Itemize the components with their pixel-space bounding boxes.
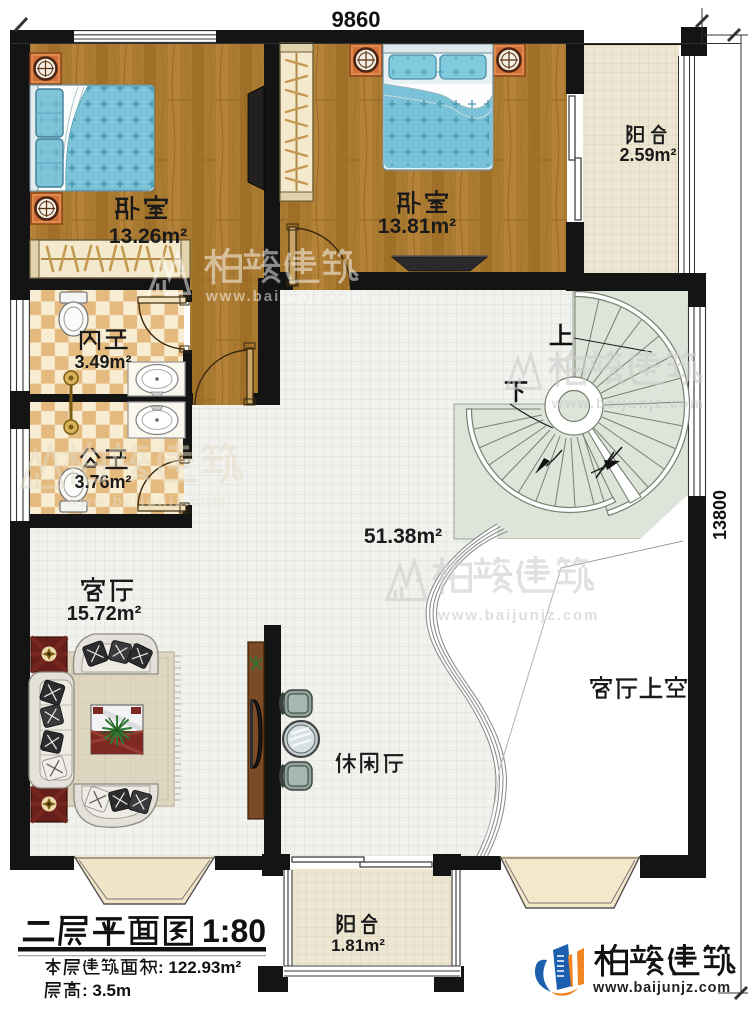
svg-text:www.baijunjz.com: www.baijunjz.com [437,607,599,624]
svg-text:: 3.5m: : 3.5m [82,981,131,1000]
svg-text:3.49m²: 3.49m² [74,352,131,372]
svg-text:15.72m²: 15.72m² [67,603,142,625]
svg-text:www.baijunjz.com: www.baijunjz.com [592,980,731,996]
svg-text:13800: 13800 [710,490,730,540]
svg-text:2.59m²: 2.59m² [619,145,676,165]
svg-text:13.81m²: 13.81m² [378,215,456,238]
svg-text:: 122.93m²: : 122.93m² [158,958,241,977]
svg-text:www.baijunjz.com: www.baijunjz.com [551,395,705,411]
svg-text:1:80: 1:80 [202,913,266,949]
svg-text:1.81m²: 1.81m² [331,936,385,955]
svg-text:13.26m²: 13.26m² [109,225,187,248]
svg-text:9860: 9860 [332,7,381,32]
svg-text:51.38m²: 51.38m² [364,525,442,548]
svg-text:www.baijunjz.com: www.baijunjz.com [205,288,367,305]
svg-text:www.baijunjz.com: www.baijunjz.com [65,493,227,510]
